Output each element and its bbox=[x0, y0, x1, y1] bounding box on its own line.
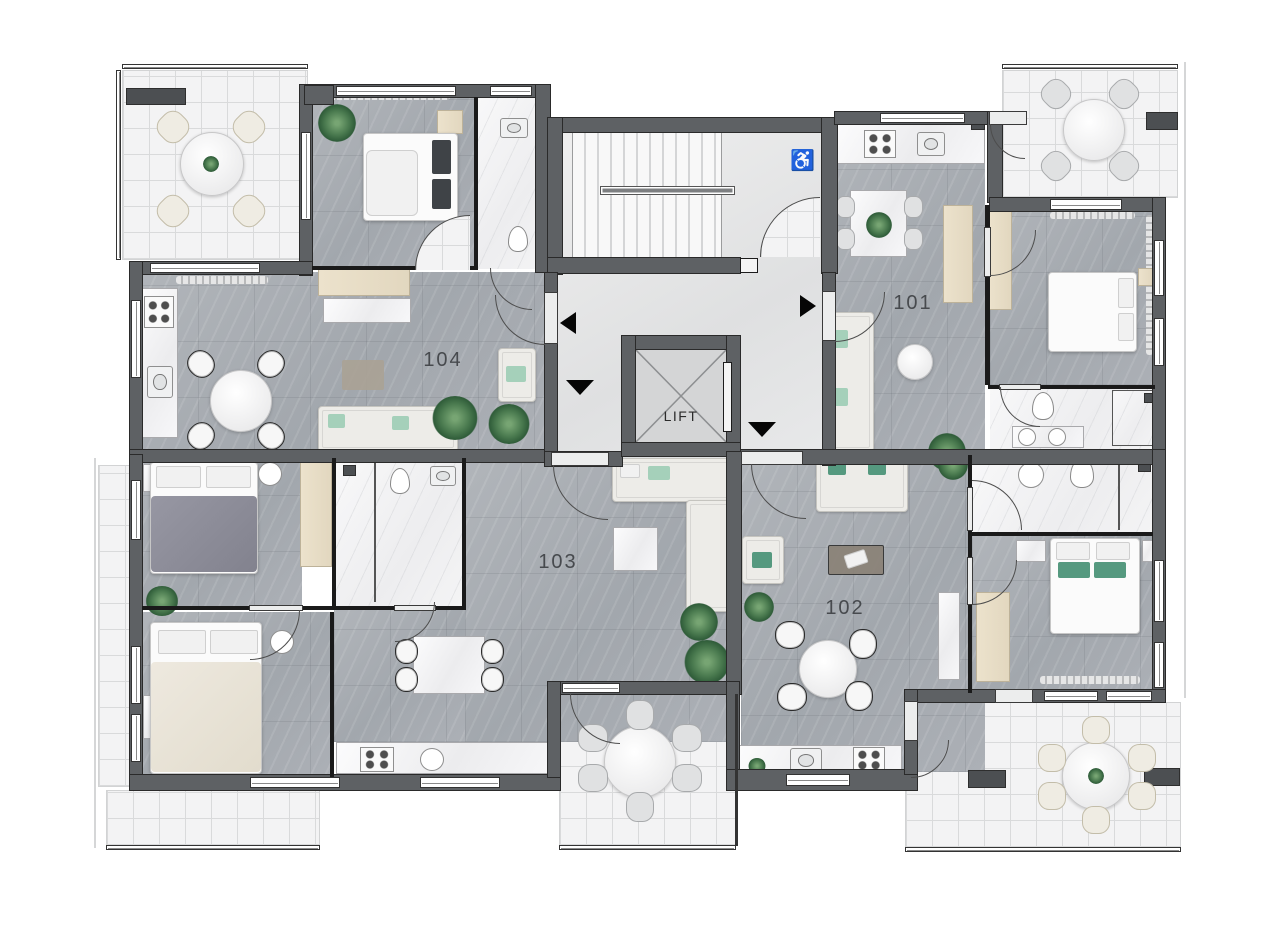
shower-head bbox=[343, 465, 356, 476]
sofa-chaise bbox=[686, 500, 733, 612]
doorway bbox=[823, 292, 835, 340]
plant bbox=[488, 404, 530, 444]
wall bbox=[130, 450, 557, 462]
plant bbox=[684, 640, 730, 684]
doorway bbox=[250, 606, 302, 610]
outdoor-chair bbox=[626, 700, 654, 730]
sofa-pillow bbox=[648, 466, 670, 480]
dining-chair bbox=[482, 668, 503, 691]
balcony-railing bbox=[1002, 64, 1178, 69]
wall bbox=[727, 452, 741, 694]
partition-wall bbox=[330, 612, 334, 778]
table-plant bbox=[203, 156, 219, 172]
nightstand bbox=[437, 110, 463, 134]
pillow bbox=[1118, 313, 1134, 341]
entrance-arrow-104 bbox=[560, 312, 576, 334]
pillow bbox=[1058, 562, 1090, 578]
balcony-railing bbox=[122, 64, 308, 69]
plant bbox=[680, 603, 718, 641]
outdoor-chair bbox=[1128, 744, 1156, 772]
bathroom-sink bbox=[1018, 428, 1036, 446]
dining-chair bbox=[850, 630, 876, 658]
window bbox=[490, 86, 532, 96]
doorway bbox=[742, 452, 802, 464]
cooktop bbox=[360, 747, 394, 772]
pillow bbox=[158, 630, 206, 654]
outdoor-chair bbox=[1128, 782, 1156, 810]
pillow bbox=[432, 179, 451, 209]
plant bbox=[744, 592, 774, 622]
outdoor-chair bbox=[1038, 782, 1066, 810]
outdoor-chair bbox=[1082, 806, 1110, 834]
duvet bbox=[151, 496, 257, 572]
wheelchair-accessible-icon: ♿ bbox=[790, 148, 815, 173]
partition-wall bbox=[332, 458, 336, 608]
balcony-edge bbox=[735, 694, 738, 846]
window bbox=[880, 113, 965, 123]
balcony-railing bbox=[116, 70, 121, 260]
window bbox=[131, 480, 141, 540]
toilet bbox=[390, 468, 410, 494]
hall-cabinet bbox=[938, 592, 960, 680]
doorway bbox=[968, 488, 972, 530]
sofa-pillow bbox=[328, 414, 345, 428]
bathroom-sink bbox=[430, 466, 456, 486]
outdoor-chair bbox=[672, 764, 702, 792]
pillow bbox=[206, 466, 251, 488]
wardrobe bbox=[976, 592, 1010, 682]
unit-103-label: 103 bbox=[526, 551, 590, 574]
dining-chair bbox=[904, 228, 923, 250]
wall bbox=[548, 258, 740, 273]
pillow bbox=[156, 466, 201, 488]
dining-table bbox=[210, 370, 272, 432]
window bbox=[250, 777, 340, 788]
entrance-arrow-102 bbox=[748, 422, 776, 437]
pillow bbox=[1094, 562, 1126, 578]
bathroom-sink bbox=[500, 118, 528, 138]
window bbox=[1154, 642, 1164, 688]
coffee-table bbox=[613, 527, 658, 571]
doorway bbox=[968, 558, 972, 604]
window bbox=[420, 777, 500, 788]
duvet bbox=[151, 662, 261, 772]
door-jamb bbox=[740, 258, 758, 273]
nightstand bbox=[1142, 540, 1153, 562]
dining-chair bbox=[778, 684, 806, 710]
armchair-pillow bbox=[752, 552, 772, 568]
outdoor-chair bbox=[626, 792, 654, 822]
tv-cabinet bbox=[943, 205, 973, 303]
wall bbox=[548, 682, 560, 777]
unit-104-label: 104 bbox=[411, 349, 475, 372]
window bbox=[1044, 691, 1098, 701]
coffee-table bbox=[897, 344, 933, 380]
shower-glass bbox=[1118, 458, 1120, 530]
wall bbox=[548, 118, 837, 132]
pillow bbox=[432, 140, 451, 174]
sofa-pillow bbox=[620, 464, 640, 478]
lift-wall bbox=[622, 336, 740, 349]
cooktop bbox=[144, 296, 174, 328]
armchair-pillow bbox=[506, 366, 526, 382]
bathroom-sink bbox=[1048, 428, 1066, 446]
sofa-pillow bbox=[392, 416, 409, 430]
planter bbox=[968, 770, 1006, 788]
dining-chair bbox=[482, 640, 503, 663]
lift-label: LIFT bbox=[635, 408, 727, 424]
pillow bbox=[1096, 542, 1130, 560]
entrance-arrow-103 bbox=[566, 380, 594, 395]
kitchen-sink bbox=[420, 748, 444, 771]
cooktop bbox=[864, 130, 896, 158]
table-plant bbox=[1088, 768, 1104, 784]
boundary-line bbox=[1184, 62, 1186, 698]
nightstand bbox=[1138, 268, 1153, 286]
pillow bbox=[1118, 278, 1134, 308]
doorway bbox=[985, 228, 990, 276]
curtain bbox=[1040, 676, 1140, 684]
balcony-railing bbox=[106, 845, 320, 850]
doorway bbox=[545, 293, 557, 343]
unit-102-label: 102 bbox=[813, 597, 877, 620]
outdoor-chair bbox=[1082, 716, 1110, 744]
table-plant bbox=[866, 212, 892, 238]
rug bbox=[342, 360, 384, 390]
partition-wall bbox=[462, 458, 466, 608]
outdoor-chair bbox=[1038, 744, 1066, 772]
dining-chair bbox=[776, 622, 804, 648]
pillow bbox=[1056, 542, 1090, 560]
stair-handrail bbox=[600, 186, 735, 195]
balcony-railing bbox=[905, 847, 1181, 852]
partition-wall bbox=[968, 532, 1153, 536]
balcony-bottom-left bbox=[106, 790, 320, 846]
balcony-railing bbox=[559, 845, 736, 850]
wall bbox=[822, 118, 837, 273]
window bbox=[150, 263, 260, 273]
dining-chair bbox=[396, 668, 417, 691]
doorway bbox=[996, 690, 1032, 702]
wardrobe bbox=[300, 462, 332, 567]
outdoor-chair bbox=[578, 764, 608, 792]
window bbox=[1154, 318, 1164, 366]
window bbox=[1154, 240, 1164, 296]
planter bbox=[126, 88, 186, 105]
kitchen-counter bbox=[835, 124, 985, 164]
nightstand bbox=[1016, 540, 1046, 562]
lift-wall bbox=[622, 336, 635, 456]
dining-chair bbox=[904, 196, 923, 218]
kitchen-sink bbox=[917, 132, 945, 156]
balcony-left-strip bbox=[98, 465, 130, 787]
window bbox=[786, 774, 850, 786]
window bbox=[301, 132, 311, 220]
outdoor-table bbox=[1063, 99, 1125, 161]
lift-shaft bbox=[635, 349, 727, 443]
window bbox=[131, 300, 141, 378]
window bbox=[1050, 199, 1122, 210]
plant bbox=[145, 586, 179, 616]
wall-pier bbox=[305, 86, 333, 104]
dining-chair bbox=[846, 682, 872, 710]
partition-wall bbox=[474, 97, 478, 270]
round-nightstand bbox=[258, 462, 282, 486]
wall bbox=[548, 118, 562, 274]
sofa-pillow bbox=[834, 388, 848, 406]
window bbox=[1154, 560, 1164, 622]
curtain bbox=[1050, 212, 1135, 219]
doorway bbox=[552, 453, 608, 465]
floor-plan: 104 101 103 102 LIFT ♿ bbox=[0, 0, 1280, 941]
planter bbox=[1146, 112, 1178, 130]
dining-table bbox=[413, 636, 485, 694]
plant bbox=[432, 396, 478, 440]
window bbox=[131, 714, 141, 762]
dining-chair bbox=[836, 196, 855, 218]
entrance-arrow-101 bbox=[800, 295, 816, 317]
entry-closet bbox=[318, 266, 410, 296]
staircase bbox=[572, 132, 722, 258]
window bbox=[336, 86, 456, 96]
window bbox=[131, 646, 141, 704]
doorway bbox=[990, 112, 1026, 124]
blanket bbox=[366, 150, 418, 216]
kitchen-sink bbox=[147, 366, 173, 398]
outdoor-chair bbox=[672, 724, 702, 752]
window bbox=[562, 683, 620, 693]
bathroom-sink bbox=[1018, 462, 1044, 488]
lift-cross-brace bbox=[635, 349, 727, 443]
dining-chair bbox=[396, 640, 417, 663]
wall bbox=[740, 450, 1165, 464]
boundary-line bbox=[94, 458, 96, 848]
curtain bbox=[176, 276, 268, 284]
dining-chair bbox=[836, 228, 855, 250]
toilet bbox=[508, 226, 528, 252]
unit-101-label: 101 bbox=[881, 292, 945, 315]
window bbox=[1106, 691, 1152, 701]
lift-wall bbox=[622, 443, 740, 456]
plant bbox=[318, 104, 356, 142]
doorway bbox=[905, 702, 917, 740]
console-table bbox=[323, 298, 411, 323]
shower-glass bbox=[374, 460, 376, 602]
